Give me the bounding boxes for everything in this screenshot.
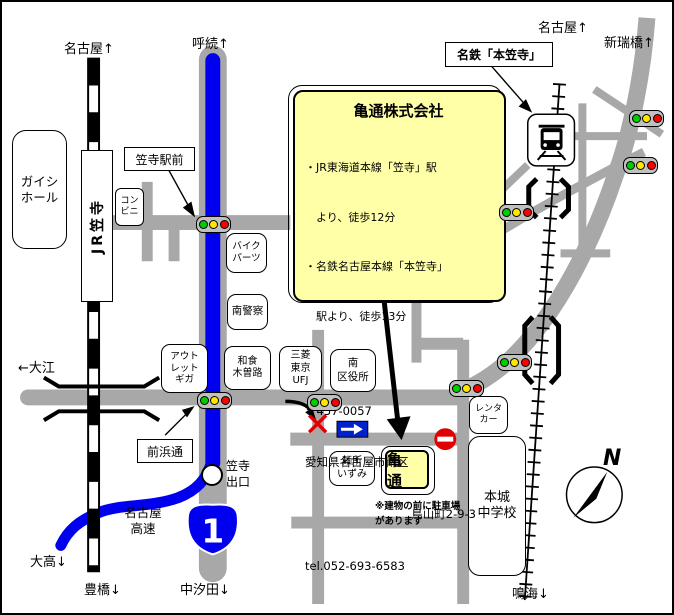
compass-icon: N: [566, 446, 622, 523]
expressway-lines: [61, 61, 213, 546]
traffic-light-arc-junction: [449, 380, 484, 397]
company-name: 亀通株式会社: [305, 100, 492, 121]
place-outlet-giga: アウトレットギガ: [161, 344, 208, 393]
traffic-light-northeast-2: [623, 157, 658, 174]
fax-number: fax.052-693-6584: [305, 610, 504, 615]
callout-maehama-dori: 前浜通: [137, 439, 193, 463]
label-aratamabashi: 新瑞橋↑: [604, 32, 654, 51]
label-toyohashi-south: 豊橋↓: [84, 579, 121, 598]
traffic-light-rail-crossing-north: [499, 204, 534, 221]
place-minami-police: 南警察: [227, 294, 268, 330]
traffic-light-rail-crossing-south: [497, 354, 532, 371]
green-light-icon: [199, 220, 208, 229]
callout-kasadera-ekimae: 笠寺駅前: [124, 147, 195, 171]
place-bike-parts: バイクパーツ: [226, 233, 267, 273]
route-map: 1 N: [0, 0, 674, 615]
compass-n-label: N: [603, 446, 621, 471]
jr-kasadera-label: JR笠寺: [87, 198, 107, 254]
callout-honkasadera: 名鉄「本笠寺」: [445, 42, 553, 67]
label-nakashioda-south: 中汐田↓: [180, 579, 230, 598]
place-convenience-store: コンビニ: [115, 188, 144, 226]
traffic-light-ufj-corner: [307, 394, 342, 411]
arrow-kasadera-ekimae: [168, 169, 190, 209]
route1-shield: 1: [188, 504, 238, 554]
train-station-icon: [528, 114, 575, 166]
red-light-icon: [220, 220, 229, 229]
kasadera-exit-marker: [201, 464, 223, 486]
place-gaishi-hall: ガイシホール: [12, 130, 67, 249]
yellow-light-icon: [209, 220, 218, 229]
access-info: ・JR東海道本線「笠寺」駅 より、徒歩12分 ・名鉄名古屋本線「本笠寺」 駅より…: [305, 127, 504, 358]
label-odaka-south: 大高↓: [30, 551, 67, 570]
traffic-light-kasadera-ekimae: [196, 216, 231, 233]
nagoya-expressway-label: 名古屋 高速: [115, 505, 171, 538]
company-info-box: 亀通株式会社 ・JR東海道本線「笠寺」駅 より、徒歩12分 ・名鉄名古屋本線「本…: [288, 85, 503, 303]
kasadera-exit-label: 笠寺 出口: [226, 459, 250, 490]
traffic-light-maehama-route1: [197, 392, 232, 409]
label-jr-north: 名古屋↑: [64, 38, 114, 57]
place-jr-kasadera-station: JR笠寺: [81, 150, 113, 302]
label-meitetsu-north: 名古屋↑: [538, 17, 588, 36]
route1-number: 1: [201, 512, 224, 550]
place-washoku-kisoji: 和食木曽路: [224, 346, 271, 390]
tel-number: tel.052-693-6583: [305, 558, 504, 575]
traffic-light-northeast-1: [629, 110, 664, 127]
label-narumi-south: 鳴海↓: [512, 583, 549, 602]
label-oe-west: ←大江: [18, 357, 55, 376]
label-route1-north: 呼続↑: [192, 33, 229, 52]
